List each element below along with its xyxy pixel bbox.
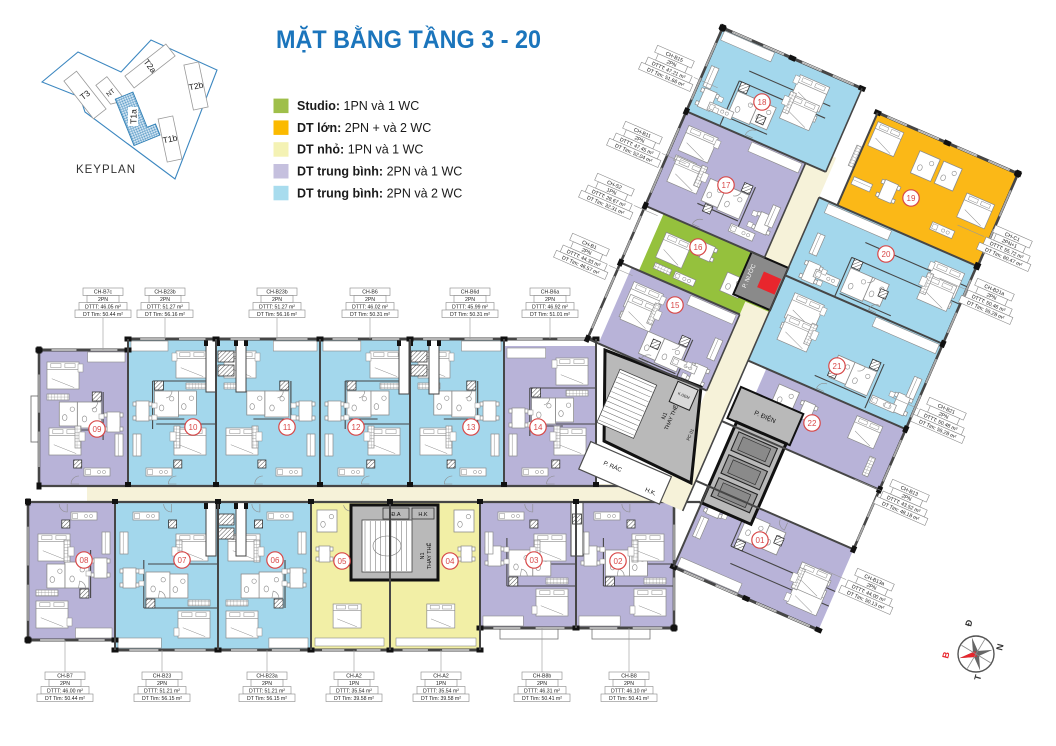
svg-text:DTTT: 35.54 m²: DTTT: 35.54 m² (423, 688, 459, 694)
svg-text:DTTT: 51.27 m²: DTTT: 51.27 m² (147, 304, 183, 310)
svg-text:KEYPLAN: KEYPLAN (76, 164, 136, 176)
svg-text:01: 01 (756, 536, 765, 545)
svg-text:CH-B8b: CH-B8b (533, 674, 552, 680)
svg-text:DT Tim: 39.58 m²: DT Tim: 39.58 m² (421, 696, 461, 702)
svg-text:DT Tim: 50.41 m²: DT Tim: 50.41 m² (609, 696, 649, 702)
svg-text:DT Tim: 50.44 m²: DT Tim: 50.44 m² (45, 696, 85, 702)
svg-text:2PN: 2PN (60, 681, 70, 687)
svg-text:DTTT: 35.54 m²: DTTT: 35.54 m² (336, 688, 372, 694)
svg-text:CH-B7: CH-B7 (57, 674, 73, 680)
svg-text:14: 14 (534, 423, 543, 432)
svg-text:06: 06 (271, 556, 280, 565)
svg-text:2PN: 2PN (624, 681, 634, 687)
svg-text:09: 09 (93, 425, 102, 434)
svg-text:2PN: 2PN (465, 297, 475, 303)
svg-text:2PN: 2PN (537, 681, 547, 687)
svg-text:DT trung bình: 2PN và 2 WC: DT trung bình: 2PN và 2 WC (297, 186, 462, 200)
svg-text:CH-A2: CH-A2 (346, 674, 362, 680)
svg-text:DT Tim: 56.15 m²: DT Tim: 56.15 m² (247, 696, 287, 702)
svg-text:2PN: 2PN (545, 297, 555, 303)
svg-text:11: 11 (283, 423, 292, 432)
svg-text:THAY THẾ: THAY THẾ (426, 542, 433, 569)
svg-text:DT Tim: 56.16 m²: DT Tim: 56.16 m² (145, 312, 185, 318)
svg-text:2PN: 2PN (365, 297, 375, 303)
svg-text:2PN: 2PN (157, 681, 167, 687)
svg-text:17: 17 (722, 181, 731, 190)
svg-text:2PN: 2PN (98, 297, 108, 303)
svg-text:DTTT: 46.00 m²: DTTT: 46.00 m² (47, 688, 83, 694)
svg-text:DTTT: 46.31 m²: DTTT: 46.31 m² (524, 688, 560, 694)
svg-text:1PN: 1PN (349, 681, 359, 687)
svg-text:03: 03 (530, 556, 539, 565)
svg-text:DTTT: 51.21 m²: DTTT: 51.21 m² (144, 688, 180, 694)
svg-text:04: 04 (446, 557, 455, 566)
svg-text:DTTT: 46.05 m²: DTTT: 46.05 m² (85, 304, 121, 310)
svg-text:DTTT: 51.27 m²: DTTT: 51.27 m² (259, 304, 295, 310)
svg-text:CH-B6a: CH-B6a (541, 290, 560, 296)
svg-text:DT Tim: 50.31 m²: DT Tim: 50.31 m² (450, 312, 490, 318)
svg-text:12: 12 (352, 423, 361, 432)
svg-text:DT lớn: 2PN + và 2 WC: DT lớn: 2PN + và 2 WC (297, 121, 431, 135)
svg-text:1PN: 1PN (436, 681, 446, 687)
svg-text:DT Tim: 56.16 m²: DT Tim: 56.16 m² (257, 312, 297, 318)
svg-text:CH-B23: CH-B23 (153, 674, 172, 680)
svg-text:DTTT: 46.92 m²: DTTT: 46.92 m² (532, 304, 568, 310)
svg-text:16: 16 (694, 243, 703, 252)
svg-text:20: 20 (882, 250, 891, 259)
svg-text:13: 13 (467, 423, 476, 432)
svg-text:CH-B6: CH-B6 (362, 290, 378, 296)
svg-text:18: 18 (758, 98, 767, 107)
svg-text:DT Tim: 56.15 m²: DT Tim: 56.15 m² (142, 696, 182, 702)
svg-text:N1: N1 (420, 552, 426, 559)
svg-text:22: 22 (808, 419, 817, 428)
svg-text:08: 08 (80, 556, 89, 565)
svg-text:T1a: T1a (129, 109, 139, 124)
svg-text:CH-B23b: CH-B23b (266, 290, 287, 296)
svg-text:10: 10 (189, 423, 198, 432)
svg-text:DT Tim: 51.01 m²: DT Tim: 51.01 m² (530, 312, 570, 318)
svg-text:05: 05 (338, 557, 347, 566)
svg-text:DT Tim: 39.58 m²: DT Tim: 39.58 m² (334, 696, 374, 702)
svg-text:2PN: 2PN (272, 297, 282, 303)
svg-text:02: 02 (614, 557, 623, 566)
svg-text:DTTT: 46.10 m²: DTTT: 46.10 m² (611, 688, 647, 694)
svg-text:MẶT BẰNG TẦNG 3 - 20: MẶT BẰNG TẦNG 3 - 20 (276, 25, 541, 54)
svg-text:07: 07 (178, 556, 187, 565)
svg-text:2PN: 2PN (262, 681, 272, 687)
svg-text:DTTT: 45.99 m²: DTTT: 45.99 m² (452, 304, 488, 310)
svg-text:Đ.A: Đ.A (391, 512, 401, 518)
svg-text:21: 21 (833, 362, 842, 371)
svg-text:Studio: 1PN và 1 WC: Studio: 1PN và 1 WC (297, 99, 419, 113)
svg-text:15: 15 (671, 301, 680, 310)
svg-text:DT Tim: 50.41 m²: DT Tim: 50.41 m² (522, 696, 562, 702)
svg-text:CH-B23a: CH-B23a (256, 674, 277, 680)
svg-text:DTTT: 51.21 m²: DTTT: 51.21 m² (249, 688, 285, 694)
svg-text:19: 19 (907, 194, 916, 203)
svg-text:CH-B7c: CH-B7c (94, 290, 113, 296)
svg-text:DT Tim: 50.44 m²: DT Tim: 50.44 m² (83, 312, 123, 318)
svg-text:DT Tim: 50.31 m²: DT Tim: 50.31 m² (350, 312, 390, 318)
svg-text:CH-A2: CH-A2 (433, 674, 449, 680)
svg-text:CH-B23b: CH-B23b (154, 290, 175, 296)
svg-text:DT nhỏ: 1PN và 1 WC: DT nhỏ: 1PN và 1 WC (297, 143, 423, 157)
svg-text:H.K: H.K (418, 512, 428, 518)
svg-text:CH-B6d: CH-B6d (461, 290, 480, 296)
svg-text:CH-B8: CH-B8 (621, 674, 637, 680)
svg-text:DT trung bình: 2PN và 1 WC: DT trung bình: 2PN và 1 WC (297, 165, 462, 179)
svg-text:2PN: 2PN (160, 297, 170, 303)
svg-text:DTTT: 46.02 m²: DTTT: 46.02 m² (352, 304, 388, 310)
